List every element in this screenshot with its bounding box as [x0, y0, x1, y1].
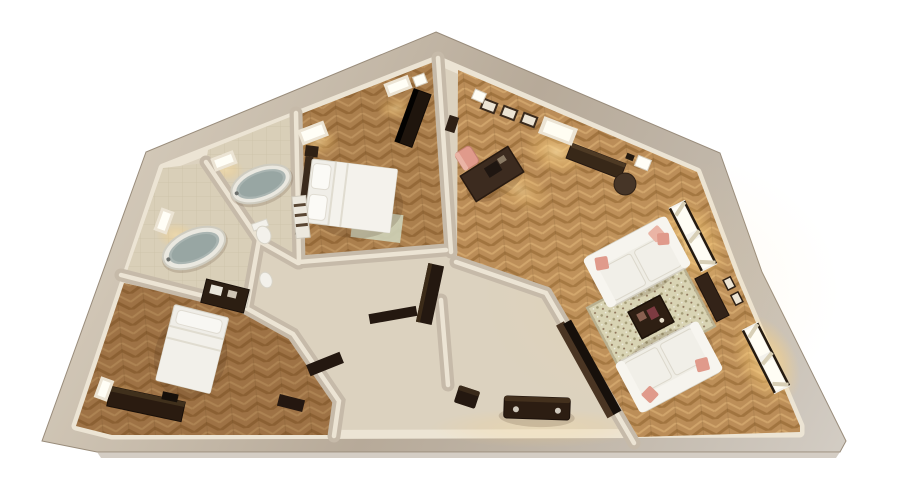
pink-pillow	[657, 233, 670, 246]
outer-wall-base-shadow	[97, 452, 840, 458]
pillow	[311, 163, 332, 190]
floorplan-page	[0, 0, 900, 500]
round-pouf	[614, 173, 636, 195]
wall-highlight	[296, 113, 299, 263]
duvet	[328, 162, 397, 233]
pink-pillow	[594, 256, 609, 271]
nightstand	[305, 145, 319, 158]
floorplan-render	[0, 0, 900, 500]
pillow	[307, 194, 328, 221]
